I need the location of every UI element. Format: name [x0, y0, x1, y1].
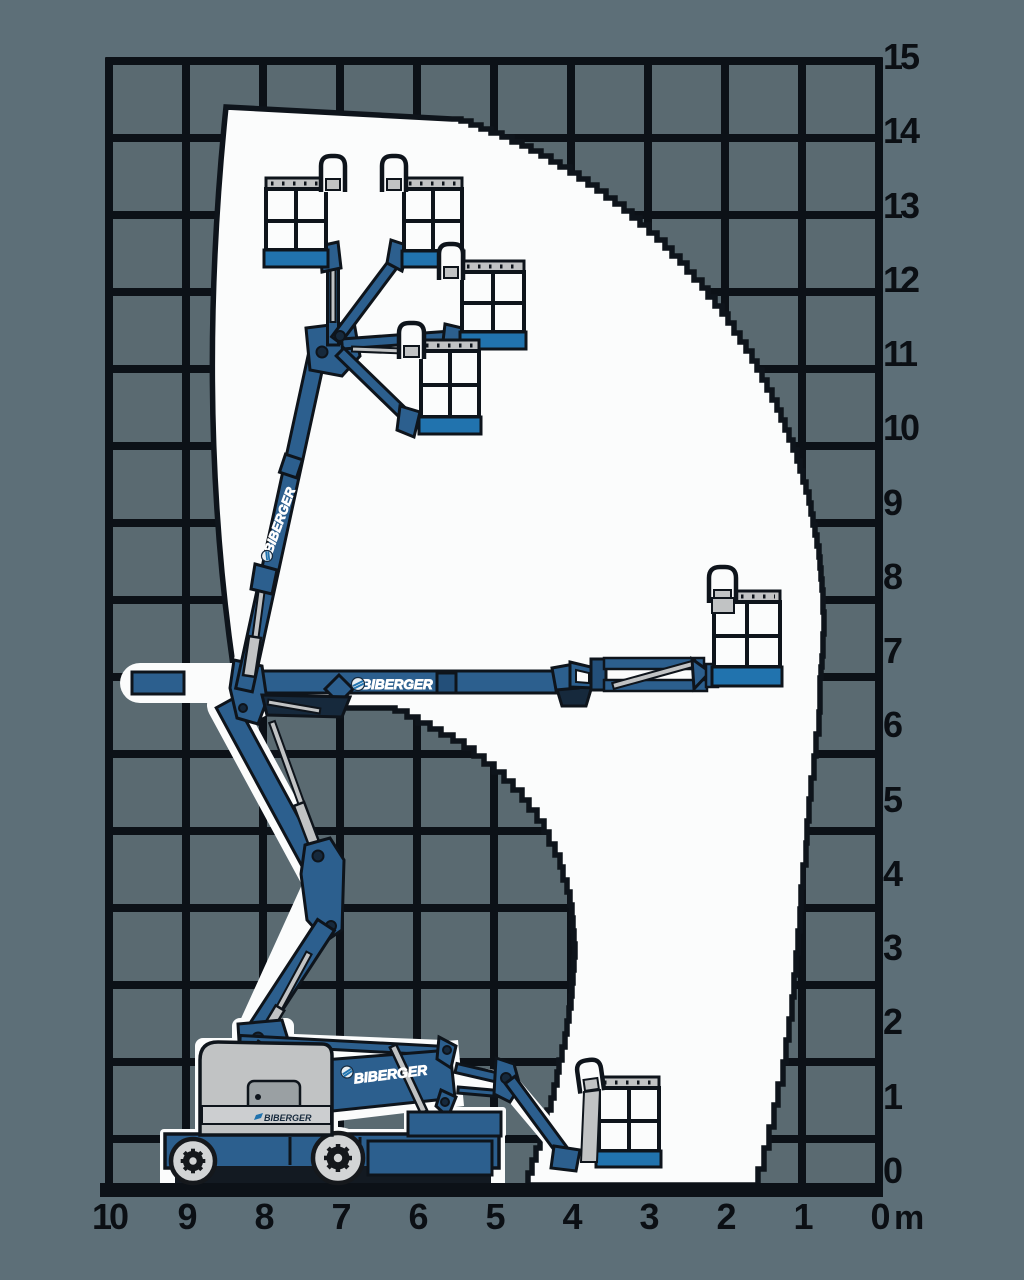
svg-text:BIBERGER: BIBERGER	[264, 1113, 312, 1123]
svg-text:2: 2	[883, 1001, 902, 1042]
svg-text:5: 5	[485, 1196, 505, 1237]
svg-text:0: 0	[870, 1196, 889, 1237]
svg-text:12: 12	[883, 259, 919, 300]
svg-text:7: 7	[331, 1196, 350, 1237]
svg-text:1: 1	[883, 1076, 903, 1117]
svg-text:4: 4	[883, 853, 903, 894]
svg-text:11: 11	[883, 333, 918, 374]
svg-text:6: 6	[408, 1196, 427, 1237]
svg-text:4: 4	[562, 1196, 582, 1237]
svg-text:0: 0	[883, 1150, 902, 1191]
svg-text:7: 7	[883, 630, 902, 671]
svg-text:10: 10	[883, 407, 919, 448]
svg-text:3: 3	[639, 1196, 658, 1237]
svg-text:1: 1	[793, 1196, 813, 1237]
svg-text:9: 9	[177, 1196, 196, 1237]
svg-text:9: 9	[883, 482, 902, 523]
svg-text:8: 8	[254, 1196, 273, 1237]
svg-text:2: 2	[716, 1196, 735, 1237]
svg-text:13: 13	[883, 185, 919, 226]
svg-text:5: 5	[883, 779, 903, 820]
svg-text:10: 10	[92, 1196, 128, 1237]
svg-text:6: 6	[883, 704, 902, 745]
svg-text:m: m	[894, 1199, 924, 1237]
svg-text:3: 3	[883, 927, 902, 968]
svg-text:14: 14	[883, 110, 920, 151]
svg-text:8: 8	[883, 556, 902, 597]
svg-text:BIBERGER: BIBERGER	[361, 677, 433, 692]
svg-text:15: 15	[883, 36, 920, 77]
